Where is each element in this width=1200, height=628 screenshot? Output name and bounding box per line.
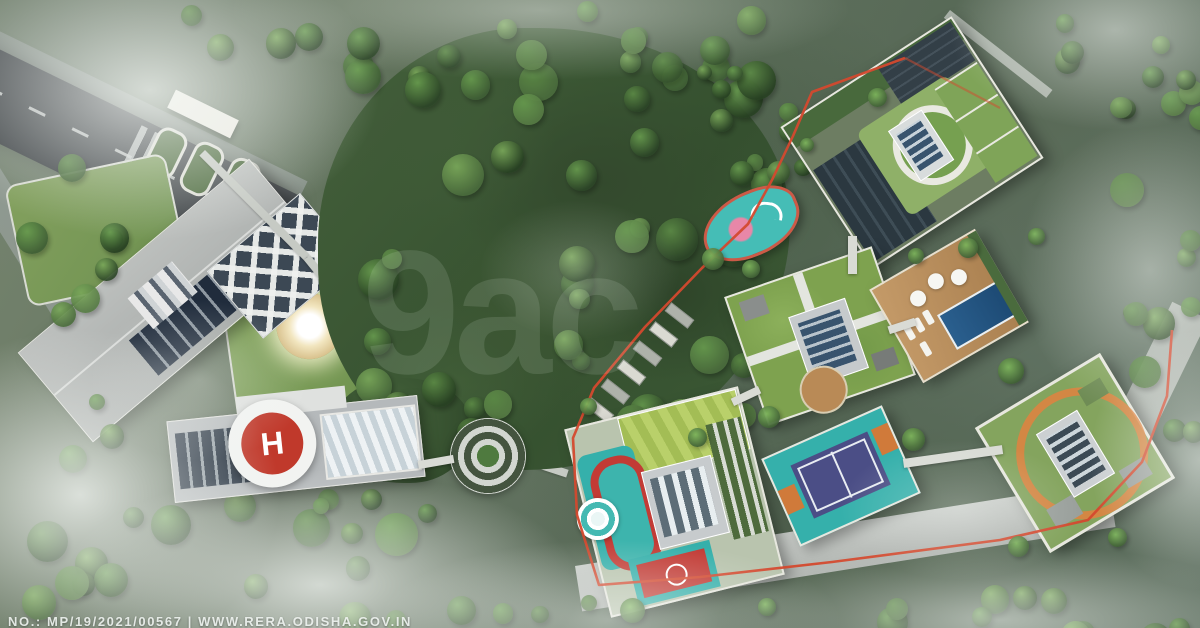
palm-tree xyxy=(620,598,645,623)
palm-tree xyxy=(580,398,597,415)
masterplan-aerial-render: H xyxy=(0,0,1200,628)
palm-tree xyxy=(902,428,925,451)
palm-tree xyxy=(908,248,924,264)
palm-tree xyxy=(1008,536,1029,557)
palm-tree xyxy=(758,598,776,616)
palm-tree xyxy=(868,88,887,107)
palm-tree xyxy=(998,358,1024,384)
palm-tree xyxy=(742,260,760,278)
palm-tree xyxy=(758,406,780,428)
palm-tree xyxy=(702,248,724,270)
palm-layer xyxy=(0,0,1200,628)
palm-tree xyxy=(958,238,978,258)
palm-tree xyxy=(688,428,707,447)
palm-tree xyxy=(1028,228,1045,245)
palm-tree xyxy=(800,138,814,152)
palm-tree xyxy=(1108,528,1127,547)
rera-registration-text: NO.: MP/19/2021/00567 | WWW.RERA.ODISHA.… xyxy=(8,614,412,628)
